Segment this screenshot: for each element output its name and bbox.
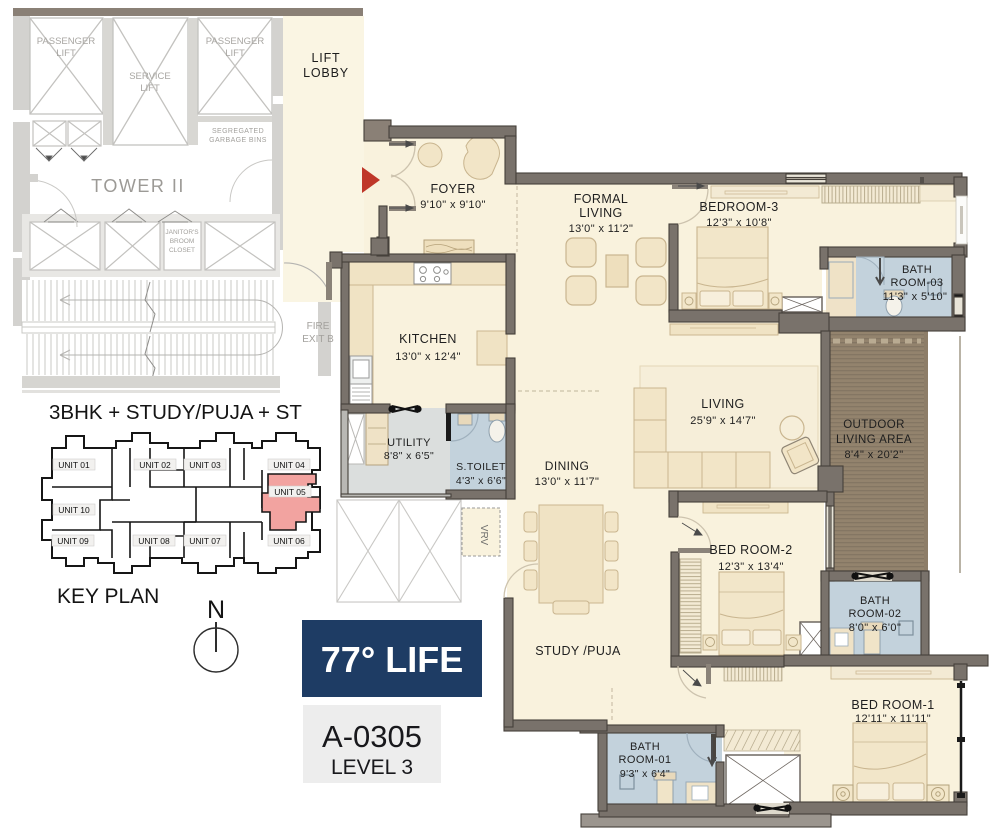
svg-text:OUTDOOR: OUTDOOR (843, 419, 905, 431)
svg-text:BED ROOM-1: BED ROOM-1 (851, 698, 934, 712)
svg-text:8'8" x 6'5": 8'8" x 6'5" (384, 450, 434, 462)
svg-text:KITCHEN: KITCHEN (399, 332, 457, 346)
svg-text:8'4" x 20'2": 8'4" x 20'2" (844, 449, 903, 461)
svg-text:BATH: BATH (630, 741, 660, 753)
svg-text:3BHK + STUDY/PUJA + ST: 3BHK + STUDY/PUJA + ST (49, 401, 302, 424)
svg-text:9'3" x 6'4": 9'3" x 6'4" (620, 768, 670, 780)
svg-text:LIFT: LIFT (225, 48, 245, 59)
svg-text:UNIT 05: UNIT 05 (274, 487, 306, 497)
svg-text:25'9" x 14'7": 25'9" x 14'7" (690, 415, 756, 427)
svg-text:BEDROOM-3: BEDROOM-3 (699, 200, 778, 214)
svg-text:PASSENGER: PASSENGER (37, 36, 96, 47)
svg-text:ROOM-03: ROOM-03 (891, 277, 944, 289)
svg-text:BATH: BATH (902, 264, 932, 276)
svg-text:LIVING: LIVING (701, 397, 744, 411)
svg-text:EXIT B: EXIT B (302, 334, 334, 345)
svg-text:DINING: DINING (545, 459, 589, 473)
svg-text:LIFT: LIFT (140, 83, 160, 94)
svg-text:UNIT 07: UNIT 07 (189, 536, 221, 546)
svg-text:UNIT 04: UNIT 04 (273, 460, 305, 470)
svg-text:JANITOR'S: JANITOR'S (165, 229, 199, 236)
svg-text:12'3" x 13'4": 12'3" x 13'4" (718, 561, 784, 573)
svg-text:TOWER II: TOWER II (91, 176, 185, 196)
svg-text:13'0" x 11'7": 13'0" x 11'7" (535, 476, 600, 488)
svg-text:KEY PLAN: KEY PLAN (57, 585, 159, 608)
svg-text:UNIT 02: UNIT 02 (139, 460, 171, 470)
svg-text:CLOSET: CLOSET (169, 247, 195, 254)
svg-text:LIVING: LIVING (579, 206, 622, 220)
svg-text:LIFT: LIFT (312, 51, 341, 65)
svg-text:BED ROOM-2: BED ROOM-2 (709, 543, 792, 557)
svg-text:LEVEL 3: LEVEL 3 (331, 756, 413, 779)
svg-text:FOYER: FOYER (430, 182, 475, 196)
svg-text:FIRE: FIRE (307, 321, 330, 332)
svg-text:BATH: BATH (860, 595, 890, 607)
svg-text:FORMAL: FORMAL (574, 192, 629, 206)
svg-text:SERVICE: SERVICE (129, 71, 171, 82)
svg-text:12'11" x 11'11": 12'11" x 11'11" (855, 713, 931, 725)
svg-text:LOBBY: LOBBY (303, 66, 349, 80)
svg-text:SEGREGATED: SEGREGATED (212, 128, 264, 135)
svg-text:8'0" x 6'0": 8'0" x 6'0" (849, 622, 902, 634)
svg-text:UTILITY: UTILITY (387, 437, 431, 449)
svg-text:UNIT 09: UNIT 09 (57, 536, 89, 546)
svg-text:UNIT 01: UNIT 01 (58, 460, 90, 470)
svg-text:LIVING AREA: LIVING AREA (836, 434, 912, 446)
svg-text:13'0" x 12'4": 13'0" x 12'4" (395, 351, 461, 363)
svg-text:12'3" x 10'8": 12'3" x 10'8" (706, 217, 772, 229)
svg-text:A-0305: A-0305 (322, 719, 422, 754)
svg-text:UNIT 06: UNIT 06 (273, 536, 305, 546)
svg-text:STUDY /PUJA: STUDY /PUJA (535, 644, 621, 658)
svg-text:UNIT 10: UNIT 10 (58, 505, 90, 515)
svg-text:UNIT 03: UNIT 03 (189, 460, 221, 470)
svg-text:LIFT: LIFT (56, 48, 76, 59)
svg-text:4'3" x 6'6": 4'3" x 6'6" (456, 475, 506, 487)
svg-text:ROOM-01: ROOM-01 (619, 754, 672, 766)
svg-text:UNIT 08: UNIT 08 (138, 536, 170, 546)
svg-text:9'10" x 9'10": 9'10" x 9'10" (420, 199, 486, 211)
svg-text:PASSENGER: PASSENGER (206, 36, 265, 47)
svg-text:GARBAGE BINS: GARBAGE BINS (209, 137, 267, 144)
svg-text:N: N (207, 596, 225, 624)
svg-text:VRV: VRV (478, 525, 489, 546)
svg-text:11'3" x 5'10": 11'3" x 5'10" (883, 291, 948, 303)
svg-text:S.TOILET: S.TOILET (456, 461, 506, 473)
svg-text:13'0" x 11'2": 13'0" x 11'2" (569, 223, 634, 235)
svg-text:ROOM-02: ROOM-02 (849, 608, 902, 620)
svg-text:BROOM: BROOM (170, 238, 195, 245)
svg-text:77° LIFE: 77° LIFE (321, 639, 463, 680)
